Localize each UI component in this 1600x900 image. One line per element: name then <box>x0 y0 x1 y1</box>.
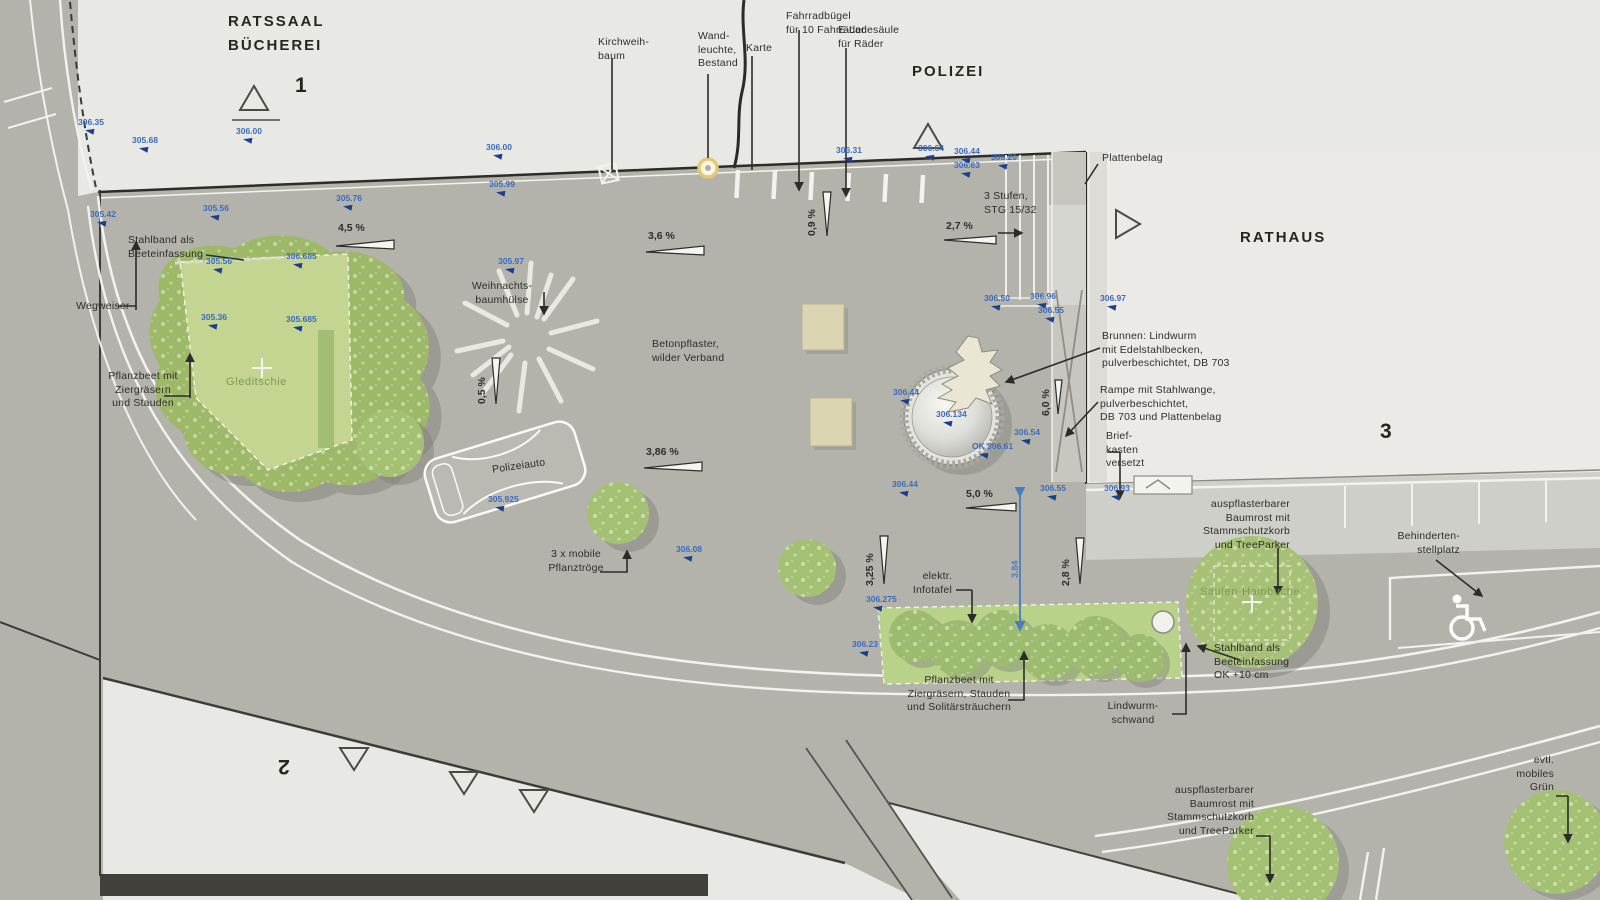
mailbox <box>1134 476 1192 494</box>
label-brunnen: Brunnen: Lindwurmmit Edelstahlbecken,pul… <box>1102 330 1230 371</box>
elevation-marker: OK 306.61 <box>972 442 1013 458</box>
building-number-1: 1 <box>295 74 307 98</box>
slope-label: 3,86 % <box>646 446 679 458</box>
elevation-marker: 306.44 <box>893 388 919 404</box>
elevation-marker: 306.64 <box>918 144 944 160</box>
label-baumrost-1: auspflasterbarerBaumrost mitStammschutzk… <box>1150 498 1290 553</box>
elevation-marker: 305.685 <box>286 315 317 331</box>
label-wegweiser: Wegweiser <box>76 300 130 314</box>
dimension-value: 3.84 <box>1010 560 1020 578</box>
elevation-marker: 306.55 <box>1040 484 1066 500</box>
slope-label: 4,5 % <box>338 222 365 234</box>
elevation-marker: 306.44 <box>892 480 918 496</box>
label-betonpflaster: Betonpflaster,wilder Verband <box>652 338 724 365</box>
elevation-marker: 306.50 <box>984 294 1010 310</box>
elevation-marker: 305.97 <box>498 257 524 273</box>
slope-label: 3,25 % <box>864 553 876 586</box>
label-plattenbelag: Plattenbelag <box>1102 152 1163 166</box>
slope-label: 3,6 % <box>648 230 675 242</box>
elevation-marker: 306.97 <box>1100 294 1126 310</box>
lindwurmschwand-element <box>1152 611 1174 633</box>
building-label-ratssaal: RATSSAALBÜCHEREI <box>228 10 325 58</box>
elevation-marker: 306.23 <box>852 640 878 656</box>
elevation-marker: 305.36 <box>201 313 227 329</box>
elevation-marker: 306.08 <box>676 545 702 561</box>
elevation-marker: 306.54 <box>1014 428 1040 444</box>
elevation-marker: 306.685 <box>286 252 317 268</box>
tree-label-gleditschie: Gleditschie <box>226 376 287 388</box>
elevation-marker: 306.00 <box>486 143 512 159</box>
building-number-3: 3 <box>1380 420 1392 444</box>
building-number-2: 2 <box>278 754 290 778</box>
label-pflanztroege: 3 x mobilePflanztröge <box>532 548 620 575</box>
elevation-marker: 306.63 <box>954 161 980 177</box>
building-rathaus <box>1086 152 1600 484</box>
slope-label: 0,9 % <box>806 209 818 236</box>
elevation-marker: 306.35 <box>78 118 104 134</box>
slope-label: 0,5 % <box>476 377 488 404</box>
slope-label: 5,0 % <box>966 488 993 500</box>
elevation-marker: 305.76 <box>336 194 362 210</box>
label-mobiles-gruen: evtl.mobilesGrün <box>1492 754 1554 795</box>
label-pflanzbeet-1: Pflanzbeet mitZiergräsernund Stauden <box>96 370 190 411</box>
label-weihnachtsbaumhuelse: Weihnachts-baumhülse <box>462 280 542 307</box>
label-rampe: Rampe mit Stahlwange,pulverbeschichtet,D… <box>1100 384 1221 425</box>
elevation-marker: 306.20 <box>991 153 1017 169</box>
label-wandleuchte: Wand-leuchte,Bestand <box>698 30 738 71</box>
elevation-marker: 305.56 <box>206 257 232 273</box>
slope-label: 2,7 % <box>946 220 973 232</box>
label-stahlband-2: Stahlband alsBeeteinfassungOK +10 cm <box>1214 642 1289 683</box>
label-behindertenstellplatz: Behinderten-stellplatz <box>1352 530 1460 557</box>
slope-label: 2,8 % <box>1060 559 1072 586</box>
label-stufen: 3 Stufen,STG 15/32 <box>984 190 1037 217</box>
elevation-marker: 306.55 <box>1038 306 1064 322</box>
building-label-rathaus: RATHAUS <box>1240 226 1326 250</box>
tree-label-hainbuche: Säulen-Hainbuche <box>1200 586 1300 598</box>
site-plan: RATSSAALBÜCHEREI 1 POLIZEI RATHAUS 3 2 G… <box>0 0 1600 900</box>
wall-lamp-dot <box>705 165 711 171</box>
elevation-marker: 306.93 <box>1104 484 1130 500</box>
elevation-marker: 305.99 <box>489 180 515 196</box>
elevation-marker: 305.68 <box>132 136 158 152</box>
building-label-polizei: POLIZEI <box>912 60 984 84</box>
label-stahlband-1: Stahlband alsBeeteinfassung <box>128 234 203 261</box>
label-kirchweihbaum: Kirchweih-baum <box>598 36 649 63</box>
label-lindwurmschwand: Lindwurm-schwand <box>1094 700 1172 727</box>
elevation-marker: 306.275 <box>866 595 897 611</box>
slope-label: 6,0 % <box>1040 389 1052 416</box>
elevation-marker: 306.00 <box>236 127 262 143</box>
elevation-marker: 306.134 <box>936 410 967 426</box>
label-karte: Karte <box>746 42 772 56</box>
label-baumrost-2: auspflasterbarerBaumrost mitStammschutzk… <box>1124 784 1254 839</box>
elevation-marker: 305.42 <box>90 210 116 226</box>
elevation-marker: 305.925 <box>488 495 519 511</box>
elevation-marker: 305.56 <box>203 204 229 220</box>
label-pflanzbeet-2: Pflanzbeet mitZiergräsern, Staudenund So… <box>882 674 1036 715</box>
label-eladesaeule: E-Ladesäulefür Räder <box>838 24 899 51</box>
elevation-marker: 306.31 <box>836 146 862 162</box>
label-briefkasten: Brief-kastenversetzt <box>1106 430 1144 471</box>
